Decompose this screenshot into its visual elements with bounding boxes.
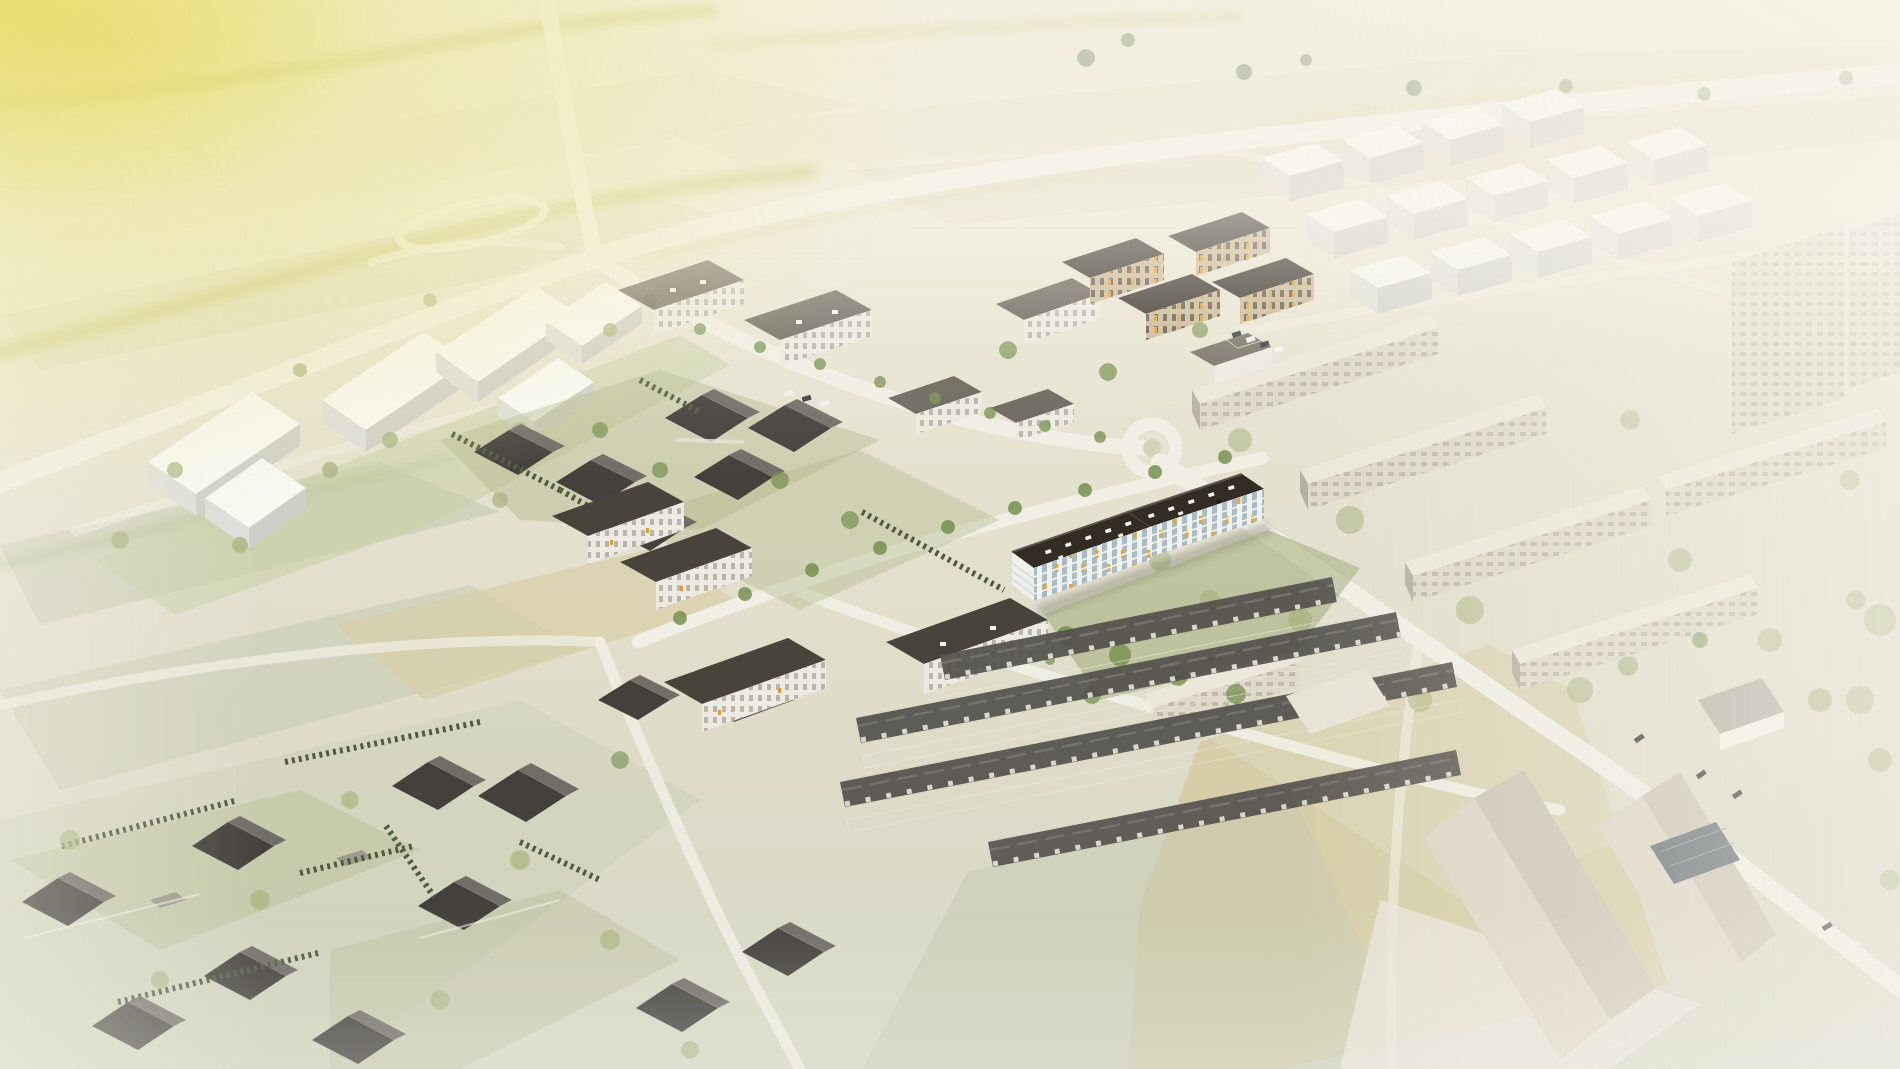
aerial-render-svg: Hazy aerial architectural rendering of a… <box>0 0 1900 1069</box>
atmosphere-overlays <box>0 0 1900 1069</box>
aerial-render-view: Hazy aerial architectural rendering of a… <box>0 0 1900 1069</box>
sun-glow-core <box>0 0 1900 1069</box>
